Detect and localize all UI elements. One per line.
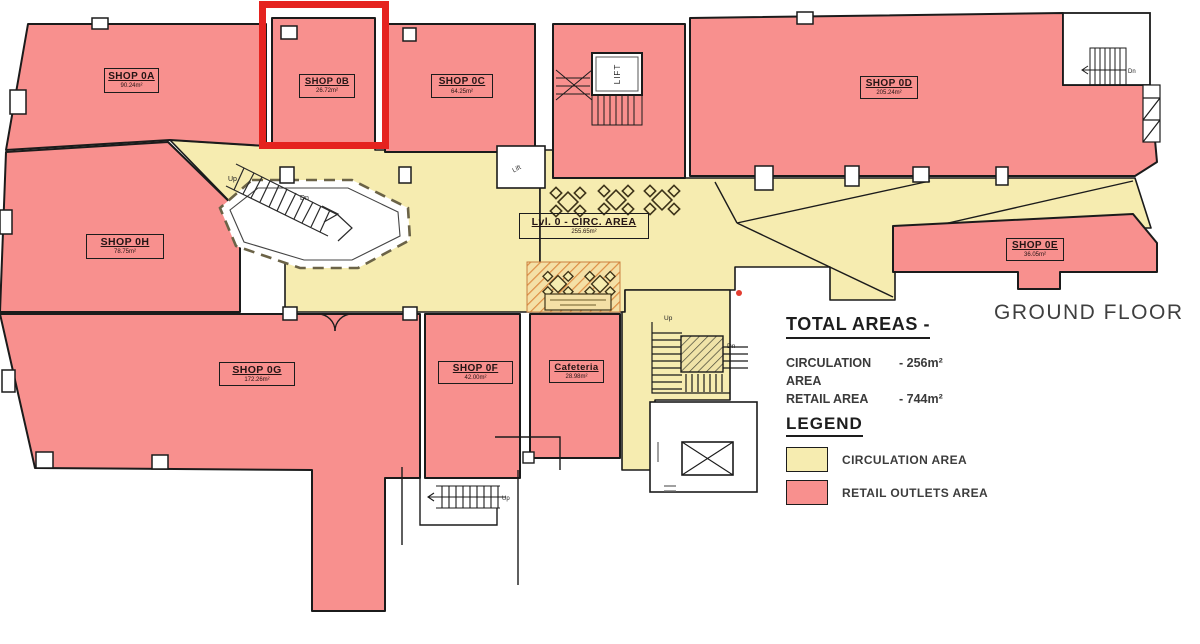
lift-label: LIFT xyxy=(613,64,622,84)
dn-label: Dn xyxy=(727,343,736,350)
shop-name: Cafeteria xyxy=(554,363,598,373)
circulation-area-value: 255.65m² xyxy=(571,229,596,235)
shop-label-cafeteria: Cafeteria 28.98m² xyxy=(549,360,604,383)
total-row-value: - 256m² xyxy=(899,354,943,390)
shop-name: SHOP 0C xyxy=(439,77,486,88)
bottom-staircase xyxy=(428,486,506,508)
shop-area: 28.98m² xyxy=(565,374,587,380)
region-shop-0f xyxy=(425,314,520,478)
dn-label: Dn xyxy=(1128,69,1136,75)
shop-name: SHOP 0H xyxy=(101,237,150,248)
floor-plan-page: Up Dn LIFT Lift Dn xyxy=(0,0,1200,644)
riser-shaft xyxy=(1143,85,1160,142)
shop-area: 36.05m² xyxy=(1024,252,1046,258)
shop-label-0a: SHOP 0A 90.24m² xyxy=(104,68,159,93)
total-row-value: - 744m² xyxy=(899,390,943,408)
locator-dot xyxy=(736,290,742,296)
total-row-circulation: CIRCULATION AREA - 256m² xyxy=(786,354,943,390)
shop-label-0d: SHOP 0D 205.24m² xyxy=(860,76,918,99)
circulation-label: Lvl. 0 - CIRC. AREA 255.65m² xyxy=(519,213,649,239)
total-row-label: RETAIL AREA xyxy=(786,390,899,408)
legend-item-circulation: CIRCULATION AREA xyxy=(786,447,988,472)
seating-area-hatched xyxy=(527,262,620,312)
shop-area: 90.24m² xyxy=(120,83,142,89)
shop-area: 64.25m² xyxy=(451,89,473,95)
retail-color-swatch xyxy=(786,480,828,505)
total-areas-rows: CIRCULATION AREA - 256m² RETAIL AREA - 7… xyxy=(786,354,943,408)
shop-label-0g: SHOP 0G 172.26m² xyxy=(219,362,295,386)
shop-label-0f: SHOP 0F 42.00m² xyxy=(438,361,513,384)
shop-name: SHOP 0F xyxy=(453,364,498,375)
legend-heading: LEGEND xyxy=(786,414,863,437)
small-lift-room: Lift xyxy=(497,146,545,188)
floor-title: GROUND FLOOR xyxy=(994,301,1184,325)
legend-label: CIRCULATION AREA xyxy=(842,453,967,467)
legend-item-retail: RETAIL OUTLETS AREA xyxy=(786,480,988,505)
shop-area: 78.75m² xyxy=(114,249,136,255)
total-row-retail: RETAIL AREA - 744m² xyxy=(786,390,943,408)
dn-label: Dn xyxy=(300,195,309,202)
shop-name: SHOP 0D xyxy=(866,79,913,90)
machine-room xyxy=(650,402,757,492)
shop-label-0e: SHOP 0E 36.05m² xyxy=(1006,238,1064,261)
region-shop-0g xyxy=(0,314,420,611)
up-label: Up xyxy=(228,176,237,183)
shop-label-0c: SHOP 0C 64.25m² xyxy=(431,74,493,98)
circulation-color-swatch xyxy=(786,447,828,472)
highlight-box-shop-0b xyxy=(259,1,389,149)
total-areas-heading: TOTAL AREAS - xyxy=(786,314,930,339)
shop-area: 205.24m² xyxy=(876,90,901,96)
shop-name: SHOP 0A xyxy=(108,72,155,83)
shop-area: 42.00m² xyxy=(464,375,486,381)
circulation-name: Lvl. 0 - CIRC. AREA xyxy=(532,217,637,228)
legend-block: LEGEND CIRCULATION AREA RETAIL OUTLETS A… xyxy=(786,414,988,513)
shop-name: SHOP 0E xyxy=(1012,241,1058,252)
legend-label: RETAIL OUTLETS AREA xyxy=(842,486,988,500)
total-row-label: CIRCULATION AREA xyxy=(786,354,899,390)
up-label: Up xyxy=(502,496,510,502)
shop-area: 172.26m² xyxy=(244,377,269,383)
up-label: Up xyxy=(664,315,673,322)
shop-label-0h: SHOP 0H 78.75m² xyxy=(86,234,164,259)
shop-name: SHOP 0G xyxy=(232,365,281,376)
region-lift-block xyxy=(553,24,685,178)
total-areas-block: TOTAL AREAS - CIRCULATION AREA - 256m² R… xyxy=(786,314,943,408)
